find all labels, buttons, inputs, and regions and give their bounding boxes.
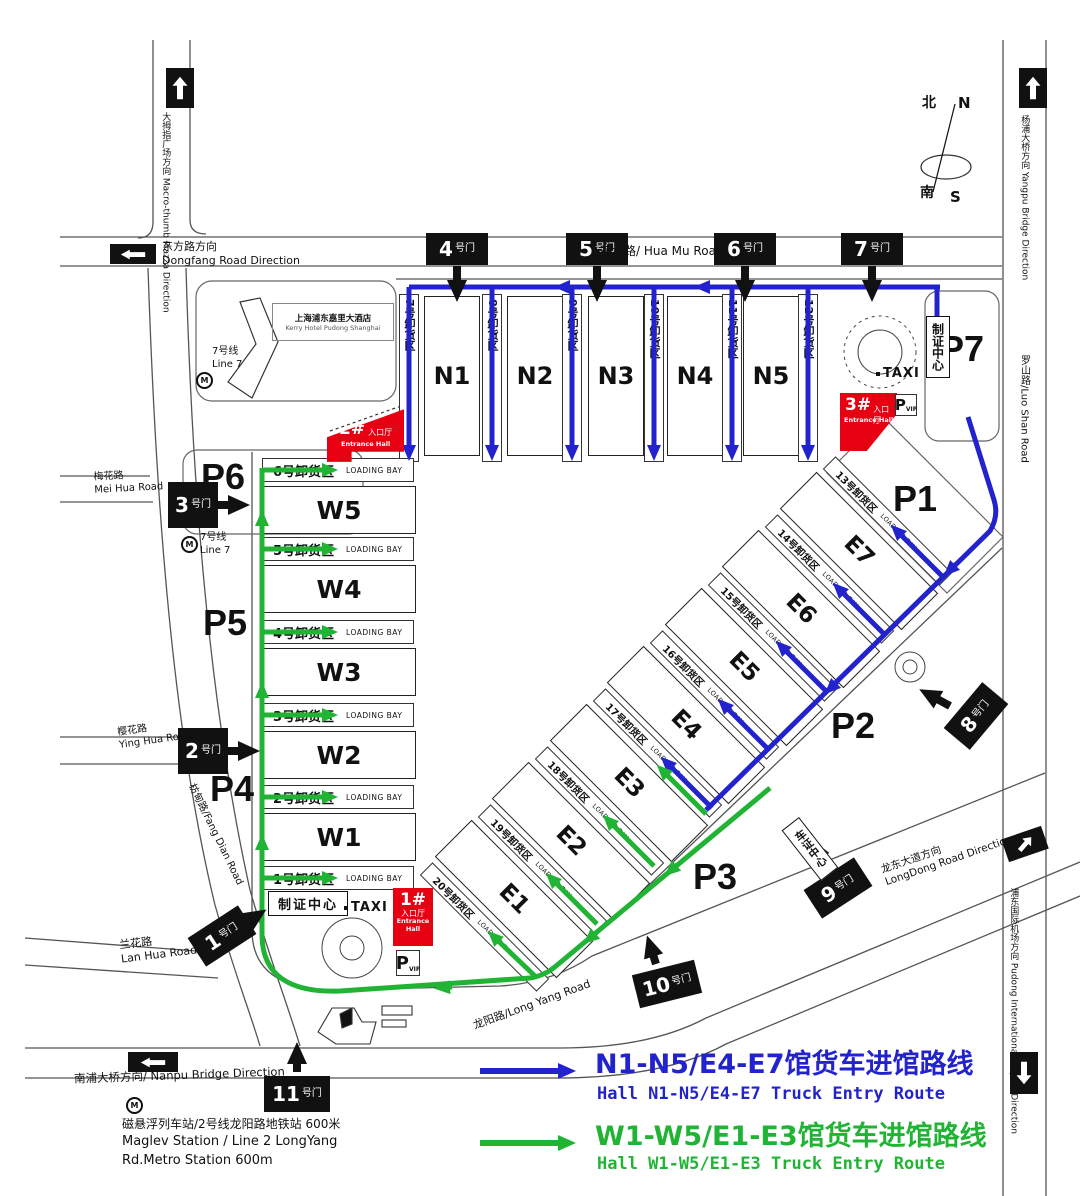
vip-parking-south: PVIP xyxy=(396,950,420,976)
up-arrow-sign-macro-thumb xyxy=(166,68,194,108)
loading-bay-2: 2号卸货区LOADING BAY xyxy=(262,785,414,809)
hall-n2: N2 xyxy=(507,296,563,456)
gate-1: 1号门 xyxy=(188,905,257,966)
road-huamu: 花木路/ Hua Mu Road xyxy=(600,244,724,259)
legend-green-zh: W1-W5/E1-E3馆货车进馆路线 xyxy=(595,1114,987,1153)
hall-w4: W4 xyxy=(262,565,416,613)
hall-n3: N3 xyxy=(588,296,644,456)
road-lines xyxy=(25,40,1080,1196)
loading-bay-8: 8号卸货区LOADING BAY xyxy=(482,294,502,462)
gate-7: 7号门 xyxy=(841,233,903,265)
compass-north-en: N xyxy=(958,94,971,112)
down-arrow-sign-pudong xyxy=(1010,1052,1038,1094)
parking-p5: P5 xyxy=(190,602,260,644)
parking-p6: P6 xyxy=(188,456,258,498)
left-arrow-icon xyxy=(118,248,148,261)
road-lanhua: 兰花路Lan Hua Road xyxy=(119,929,198,966)
road-meihua: 梅花路Mei Hua Road xyxy=(93,468,163,497)
parking-p1: P1 xyxy=(880,478,950,520)
loading-bay-3: 3号卸货区LOADING BAY xyxy=(262,703,414,727)
taxi-label-north: TAXI xyxy=(876,366,920,381)
legend-blue-zh: N1-N5/E4-E7馆货车进馆路线 xyxy=(595,1042,974,1081)
legend-green-en: Hall W1-W5/E1-E3 Truck Entry Route xyxy=(597,1154,945,1174)
road-luoshan: 罗山路/Luo Shan Road xyxy=(1017,355,1030,465)
vip-parking-north: PVIP xyxy=(895,394,917,416)
cert-center-south: 制证中心 xyxy=(268,891,348,916)
sniec-truck-route-map: 7号卸货区LOADING BAY N1 8号卸货区LOADING BAY N2 … xyxy=(0,0,1080,1196)
loading-bay-4: 4号卸货区LOADING BAY xyxy=(262,620,414,644)
left-arrow-icon xyxy=(137,1056,169,1069)
hall-w2: W2 xyxy=(262,731,416,779)
line7-label-gate3: 7号线Line 7 xyxy=(200,532,230,557)
parking-p4: P4 xyxy=(197,768,267,810)
up-arrow-icon xyxy=(171,75,189,101)
cert-center-north: 制证中心 xyxy=(926,316,950,378)
vehicle-cert-center: 车证中心 xyxy=(782,817,839,881)
down-arrow-icon xyxy=(1015,1060,1033,1086)
entrance-hall-2: 2# 入口厅 Entrance Hall xyxy=(327,407,404,463)
entrance-hall-3: 3# 入口厅 Entrance Hall xyxy=(840,393,897,451)
compass-needle xyxy=(921,104,971,192)
hall-w5: W5 xyxy=(262,486,416,534)
road-pudong-airport: 浦东国际机场方向 Pudong International Airport Di… xyxy=(1007,888,1018,1048)
legend-blue-en: Hall N1-N5/E4-E7 Truck Entry Route xyxy=(597,1084,945,1104)
gate-4: 4号门 xyxy=(426,233,488,265)
metro-icon-hotel: M xyxy=(196,372,213,389)
loading-bay-1: 1号卸货区LOADING BAY xyxy=(262,866,414,890)
parking-p3: P3 xyxy=(680,856,750,898)
loading-bay-12: 12号卸货区LOADING BAY xyxy=(798,294,818,462)
taxi-label-south: TAXI xyxy=(344,900,388,915)
gate-8: 8号门 xyxy=(944,682,1009,750)
legend-green-arrow xyxy=(478,1134,578,1156)
loading-bay-11: 11号卸货区LOADING BAY xyxy=(722,294,742,462)
compass-south-zh: 南 xyxy=(920,182,934,202)
hall-n1: N1 xyxy=(424,296,480,456)
left-arrow-sign-dongfang xyxy=(110,244,156,264)
legend-blue-arrow xyxy=(478,1062,578,1084)
hotel-label: 上海浦东嘉里大酒店 Kerry Hotel Pudong Shanghai xyxy=(272,303,394,341)
entrance-hall-1: 1# 入口厅 Entrance Hall xyxy=(393,888,433,946)
road-yangpu: 杨浦大桥方向 Yangpu Bridge Direction xyxy=(1018,115,1029,275)
maglev-note: 磁悬浮列车站/2号线龙阳路地铁站 600米 Maglev Station / L… xyxy=(122,1116,340,1171)
road-macro-thumb: 大拇指广场方向 Macro-thumb Piazza Direction xyxy=(159,112,170,237)
hall-w3: W3 xyxy=(262,648,416,696)
compass-north-zh: 北 xyxy=(922,92,936,112)
road-dongfang: 东方路方向Dongfang Road Direction xyxy=(162,240,300,268)
hall-n5: N5 xyxy=(743,296,799,456)
loading-bay-10: 10号卸货区LOADING BAY xyxy=(644,294,664,462)
road-longdong: 龙东大道方向LongDong Road Direction xyxy=(879,821,1014,889)
taxi-dot xyxy=(344,906,348,910)
up-arrow-sign-yangpu xyxy=(1019,68,1047,108)
compass-south-en: S xyxy=(950,188,961,206)
loading-bay-9: 9号卸货区LOADING BAY xyxy=(562,294,582,462)
road-nanpu: 南浦大桥方向/ Nanpu Bridge Direction xyxy=(74,1064,285,1086)
up-arrow-icon xyxy=(1024,75,1042,101)
metro-icon-gate3: M xyxy=(181,536,198,553)
loading-bay-5: 5号卸货区LOADING BAY xyxy=(262,537,414,561)
metro-icon-south: M xyxy=(126,1097,143,1114)
hall-n4: N4 xyxy=(667,296,723,456)
taxi-dot xyxy=(876,372,880,376)
parking-p2: P2 xyxy=(818,705,888,747)
hall-w1: W1 xyxy=(262,813,416,861)
service-buildings xyxy=(318,1006,412,1044)
up-right-arrow-icon xyxy=(1013,832,1037,857)
gate-11: 11号门 xyxy=(264,1076,330,1112)
gate-10: 10号门 xyxy=(632,960,702,1008)
line7-label-hotel: 7号线Line 7 xyxy=(212,346,242,371)
